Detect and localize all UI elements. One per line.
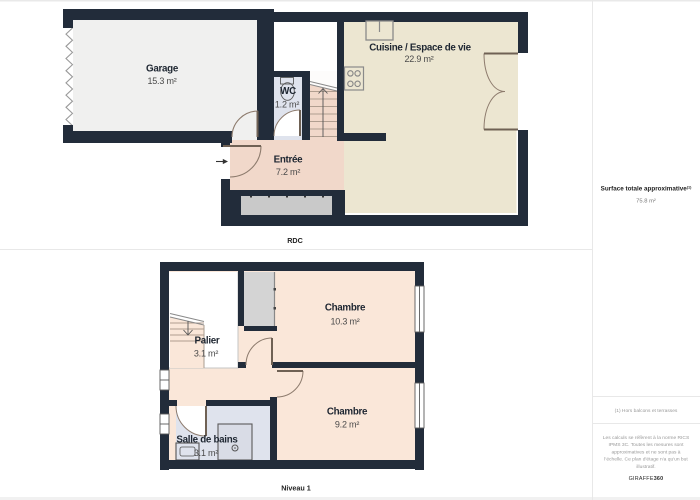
svg-text:Chambre: Chambre <box>327 407 368 418</box>
svg-text:Garage: Garage <box>146 64 179 75</box>
svg-text:Salle de bains: Salle de bains <box>176 435 238 446</box>
svg-text:WC: WC <box>280 86 296 97</box>
svg-text:Surface totale approximative(1: Surface totale approximative(1) <box>601 186 692 193</box>
svg-text:9.2 m²: 9.2 m² <box>335 420 360 430</box>
svg-text:Niveau 1: Niveau 1 <box>281 484 311 493</box>
svg-text:IPMS 3C. Toutes les mesures so: IPMS 3C. Toutes les mesures sont <box>609 442 685 448</box>
svg-text:3.1 m²: 3.1 m² <box>194 349 219 359</box>
svg-text:22.9 m²: 22.9 m² <box>404 54 433 64</box>
svg-text:GIRAFFE360: GIRAFFE360 <box>629 476 664 482</box>
svg-text:75.8 m²: 75.8 m² <box>636 199 656 205</box>
svg-text:Les calculs se réfèrent à la n: Les calculs se réfèrent à la norme RICS <box>603 435 690 441</box>
svg-text:RDC: RDC <box>287 236 303 245</box>
svg-text:7.2 m²: 7.2 m² <box>276 167 301 177</box>
svg-text:Entrée: Entrée <box>274 155 304 166</box>
svg-text:3.1 m²: 3.1 m² <box>194 448 219 458</box>
svg-text:l'échelle. Ce plan d'étage n'a: l'échelle. Ce plan d'étage n'a qu'un but <box>604 457 688 463</box>
svg-text:Palier: Palier <box>195 336 220 347</box>
svg-text:Cuisine / Espace de vie: Cuisine / Espace de vie <box>369 43 471 54</box>
svg-text:1.2 m²: 1.2 m² <box>275 100 300 110</box>
svg-text:(1) Hors balcons et terrasses: (1) Hors balcons et terrasses <box>615 408 678 414</box>
svg-text:15.3 m²: 15.3 m² <box>147 76 176 86</box>
svg-text:approximatives et ne sont pas: approximatives et ne sont pas à <box>611 449 680 455</box>
svg-text:10.3 m²: 10.3 m² <box>330 317 359 327</box>
svg-text:illustratif.: illustratif. <box>636 464 655 470</box>
svg-text:Chambre: Chambre <box>325 303 366 314</box>
